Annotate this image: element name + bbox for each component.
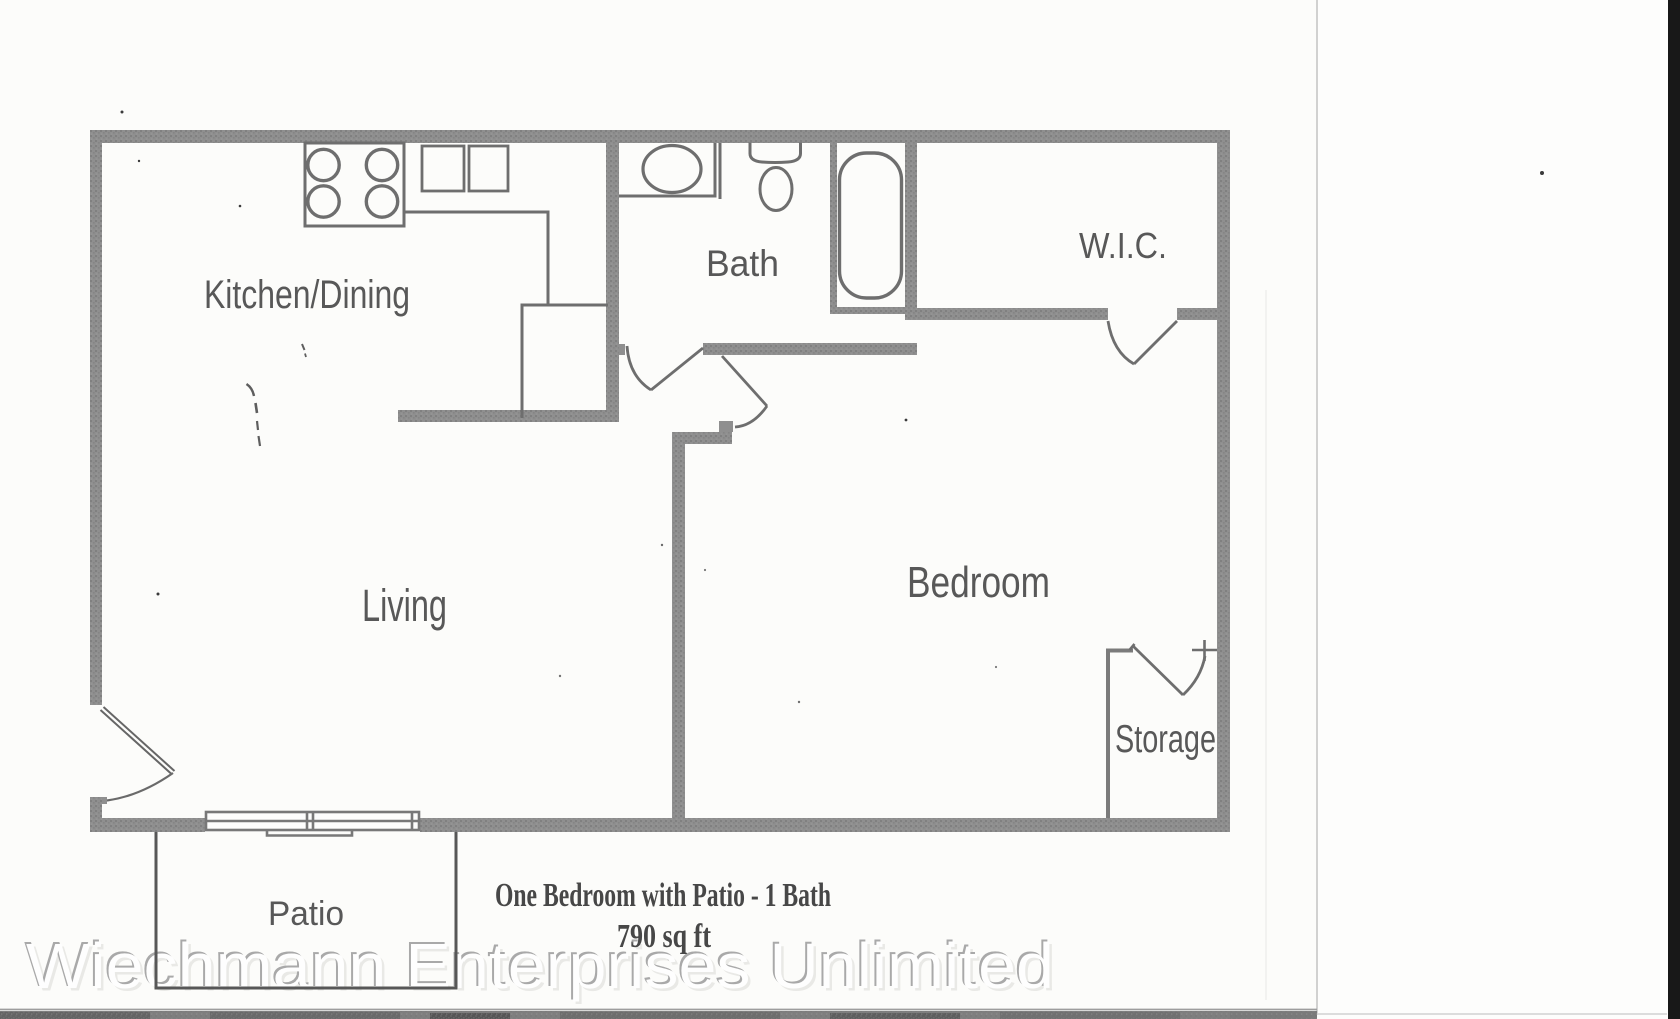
svg-text:Storage: Storage: [1115, 718, 1216, 761]
svg-text:790 sq ft: 790 sq ft: [617, 918, 712, 955]
svg-text:Kitchen/Dining: Kitchen/Dining: [204, 273, 410, 317]
svg-text:W.I.C.: W.I.C.: [1079, 225, 1167, 266]
svg-text:Patio: Patio: [268, 895, 344, 933]
svg-text:Bedroom: Bedroom: [907, 558, 1050, 607]
svg-text:Bath: Bath: [706, 243, 779, 284]
svg-text:One Bedroom with Patio - 1 Bat: One Bedroom with Patio - 1 Bath: [495, 877, 831, 914]
svg-text:Wiechmann Enterprises Unlimite: Wiechmann Enterprises Unlimited: [26, 930, 1054, 1002]
svg-text:Living: Living: [362, 580, 447, 631]
